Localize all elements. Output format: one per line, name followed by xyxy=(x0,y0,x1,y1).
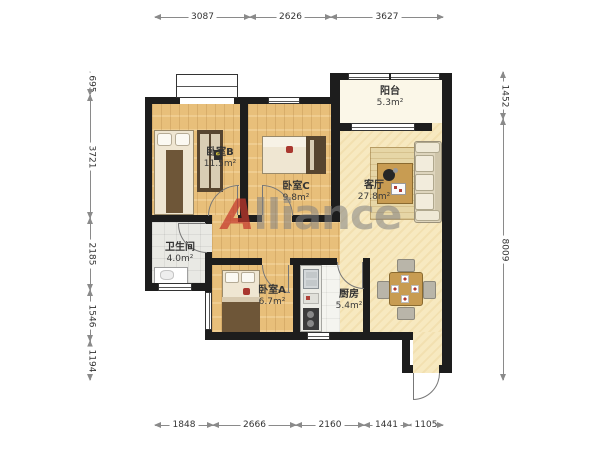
room-area: 5.3m² xyxy=(365,98,415,109)
dim-value: 2626 xyxy=(276,12,305,23)
room-area: 11.5m² xyxy=(195,159,245,170)
wall xyxy=(292,215,340,222)
window-bedroom-a xyxy=(205,292,212,330)
dining-chair xyxy=(397,259,415,272)
plate xyxy=(401,275,409,283)
plate xyxy=(401,295,409,303)
dim-value: 695 xyxy=(86,72,97,95)
dim-left-5: 1194 xyxy=(90,341,91,380)
wall xyxy=(205,215,212,224)
dim-value: 2666 xyxy=(240,420,269,431)
sink-basin xyxy=(306,280,317,286)
bay-opening xyxy=(180,97,234,104)
sofa-cushion xyxy=(415,155,434,172)
decor-red xyxy=(286,146,293,153)
dim-top-1: 3087 xyxy=(155,17,250,18)
window-balcony xyxy=(348,73,440,80)
room-label-bathroom: 卫生间 4.0m² xyxy=(152,242,208,264)
counter-item-red xyxy=(306,296,310,300)
door-leaf xyxy=(413,373,414,399)
door-leaf xyxy=(178,223,206,224)
burner xyxy=(307,320,314,327)
dining-chair xyxy=(397,307,415,320)
dim-value: 3721 xyxy=(86,142,97,171)
room-label-balcony: 阳台 5.3m² xyxy=(365,86,415,108)
plate xyxy=(391,285,399,293)
plate xyxy=(411,285,419,293)
bay-window xyxy=(176,74,238,98)
balcony-sliding-door xyxy=(351,123,415,131)
wall xyxy=(205,258,262,265)
dim-value: 3087 xyxy=(188,12,217,23)
room-label-living: 客厅 27.8m² xyxy=(352,180,396,202)
dim-left-2: 3721 xyxy=(90,95,91,218)
wall xyxy=(145,215,208,222)
wall xyxy=(234,97,268,104)
door-leaf xyxy=(362,262,363,288)
pillow xyxy=(225,272,239,283)
dim-value: 2185 xyxy=(86,240,97,269)
floorplan-canvas: 阳台 5.3m² 卧室B 11.5m² 卧室C 9.8m² 客厅 27.8m² … xyxy=(0,0,600,450)
wall xyxy=(331,97,340,222)
dim-value: 1105 xyxy=(412,420,441,431)
dim-value: 3627 xyxy=(373,12,402,23)
dim-value: 1848 xyxy=(170,420,199,431)
room-name: 卧室A xyxy=(248,285,296,297)
room-area: 9.8m² xyxy=(270,193,322,204)
dim-bottom-4: 1441 xyxy=(364,425,409,426)
room-label-bedroom-c: 卧室C 9.8m² xyxy=(270,181,322,203)
dim-right-2: 8009 xyxy=(503,119,504,380)
wall xyxy=(330,332,413,340)
sink-basin xyxy=(306,272,317,278)
sofa-arm xyxy=(415,142,440,153)
burner xyxy=(307,311,314,318)
door-leaf xyxy=(237,185,238,215)
room-name: 卧室B xyxy=(195,147,245,159)
dim-value: 1452 xyxy=(499,81,510,110)
room-name: 卧室C xyxy=(270,181,322,193)
floor-entry xyxy=(413,332,442,373)
wardrobe-stripe xyxy=(310,140,314,170)
dim-value: 1194 xyxy=(86,346,97,375)
room-label-kitchen: 厨房 5.4m² xyxy=(325,289,373,311)
sofa-cushion xyxy=(415,174,434,191)
wall xyxy=(439,365,452,373)
kitchen-service-door xyxy=(307,332,330,340)
tray-dot xyxy=(399,189,402,192)
bed-sheet xyxy=(263,137,306,147)
window-mullion xyxy=(389,73,391,80)
dim-left-3: 2185 xyxy=(90,218,91,290)
window-bedroom-c xyxy=(268,97,300,104)
sofa-arm xyxy=(415,210,440,221)
room-name: 阳台 xyxy=(365,86,415,98)
door-arc-entrance xyxy=(413,373,440,400)
room-area: 27.8m² xyxy=(352,192,396,203)
pillow xyxy=(241,272,255,283)
wall-left-exterior xyxy=(145,97,152,291)
pillow xyxy=(175,133,190,146)
door-leaf xyxy=(262,185,263,215)
dim-top-2: 2626 xyxy=(250,17,331,18)
bed-runner xyxy=(166,150,183,213)
room-name: 卫生间 xyxy=(152,242,208,254)
wall xyxy=(415,123,432,131)
table-decor xyxy=(393,168,398,173)
wall xyxy=(402,365,413,373)
pillow xyxy=(157,133,172,146)
dim-bottom-5: 1105 xyxy=(409,425,443,426)
dim-bottom-1: 1848 xyxy=(155,425,213,426)
dim-value: 8009 xyxy=(499,235,510,264)
room-name: 客厅 xyxy=(352,180,396,192)
wall xyxy=(205,332,307,340)
room-name: 厨房 xyxy=(325,289,373,301)
dim-bottom-3: 2160 xyxy=(296,425,364,426)
dim-value: 1441 xyxy=(372,420,401,431)
wall-right-exterior xyxy=(442,73,452,373)
window-bathroom xyxy=(158,283,192,291)
dining-chair xyxy=(423,281,436,299)
room-label-bedroom-b: 卧室B 11.5m² xyxy=(195,147,245,169)
room-area: 6.7m² xyxy=(248,297,296,308)
room-label-bedroom-a: 卧室A 6.7m² xyxy=(248,285,296,307)
dim-value: 1546 xyxy=(86,301,97,330)
dim-left-4: 1546 xyxy=(90,290,91,341)
wall xyxy=(238,215,262,222)
dim-left-1: 695 xyxy=(90,72,91,95)
dim-bottom-2: 2666 xyxy=(213,425,296,426)
dim-right-1: 1452 xyxy=(503,72,504,119)
headboard-wardrobe-c xyxy=(306,136,326,174)
sofa-cushion xyxy=(415,193,434,210)
dim-value: 2160 xyxy=(316,420,345,431)
room-area: 5.4m² xyxy=(325,301,373,312)
wash-basin xyxy=(160,270,174,280)
wall xyxy=(337,123,351,131)
dim-top-3: 3627 xyxy=(331,17,443,18)
room-area: 4.0m² xyxy=(152,254,208,265)
